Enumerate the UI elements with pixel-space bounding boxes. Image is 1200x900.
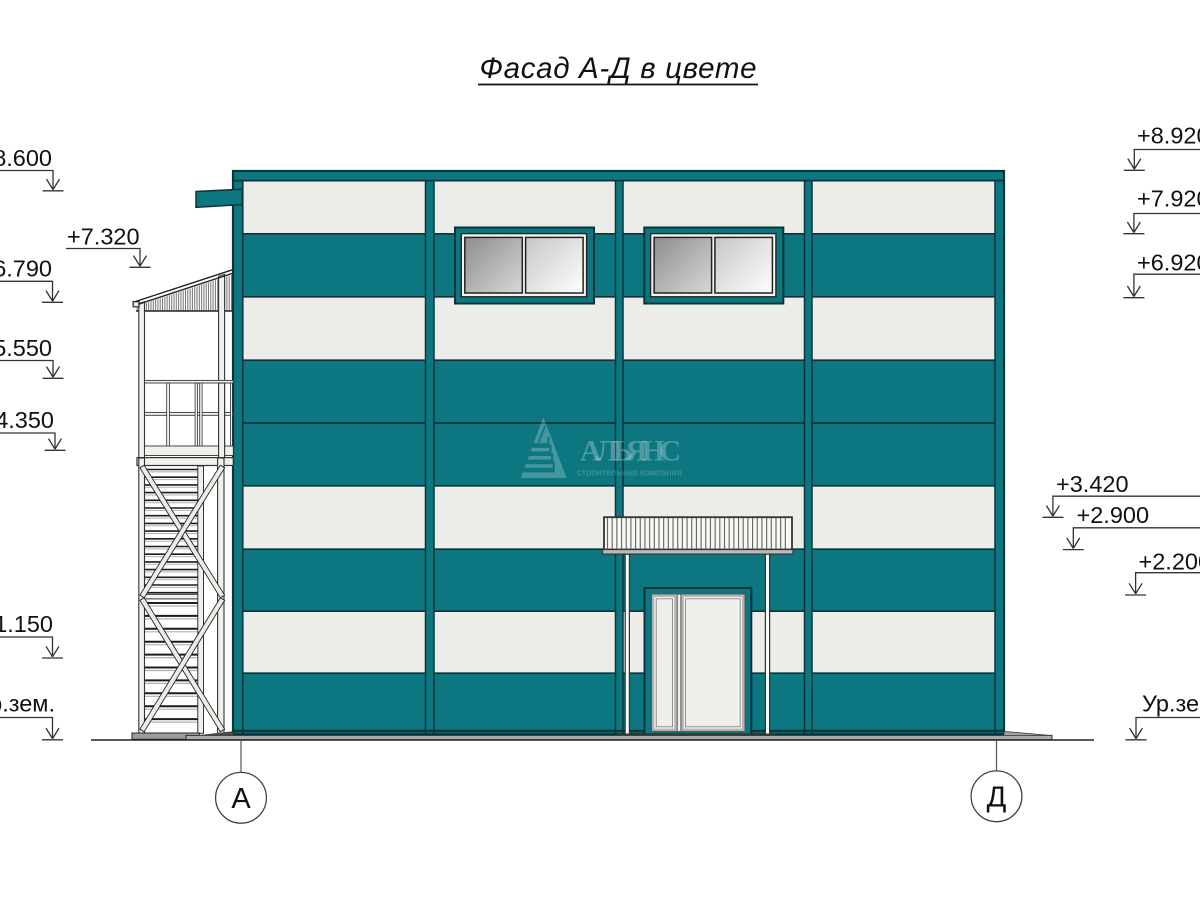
svg-text:+6.790: +6.790 xyxy=(0,256,52,282)
svg-text:+2.900: +2.900 xyxy=(1077,502,1150,528)
svg-text:+3.420: +3.420 xyxy=(1056,471,1129,497)
svg-text:строительная компания: строительная компания xyxy=(577,468,682,479)
svg-text:Ур.зем.: Ур.зем. xyxy=(0,691,55,717)
svg-text:Ур.зем.: Ур.зем. xyxy=(1142,691,1200,717)
svg-text:+6.920: +6.920 xyxy=(1137,250,1200,276)
svg-text:Фасад А-Д в цвете: Фасад А-Д в цвете xyxy=(480,52,757,85)
svg-text:+5.550: +5.550 xyxy=(0,335,52,361)
svg-text:+7.920: +7.920 xyxy=(1137,186,1200,212)
svg-text:АЛЬЯНС: АЛЬЯНС xyxy=(580,435,681,468)
svg-text:А: А xyxy=(231,783,251,815)
svg-text:+8.920: +8.920 xyxy=(1137,123,1200,149)
svg-text:+1.150: +1.150 xyxy=(0,611,53,637)
svg-text:+7.320: +7.320 xyxy=(67,224,140,250)
svg-text:+4.350: +4.350 xyxy=(0,407,54,433)
svg-text:+2.200: +2.200 xyxy=(1139,548,1200,574)
svg-text:+8.600: +8.600 xyxy=(0,145,52,171)
svg-text:Д: Д xyxy=(987,782,1007,814)
